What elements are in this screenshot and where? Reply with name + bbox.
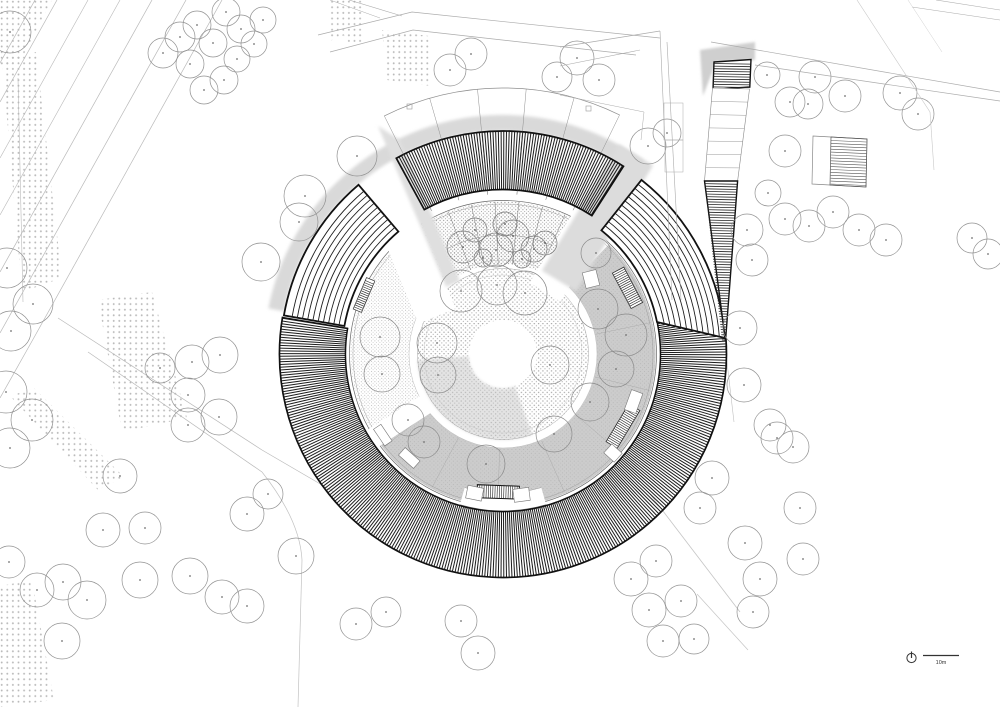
svg-text:10m: 10m — [936, 660, 947, 666]
